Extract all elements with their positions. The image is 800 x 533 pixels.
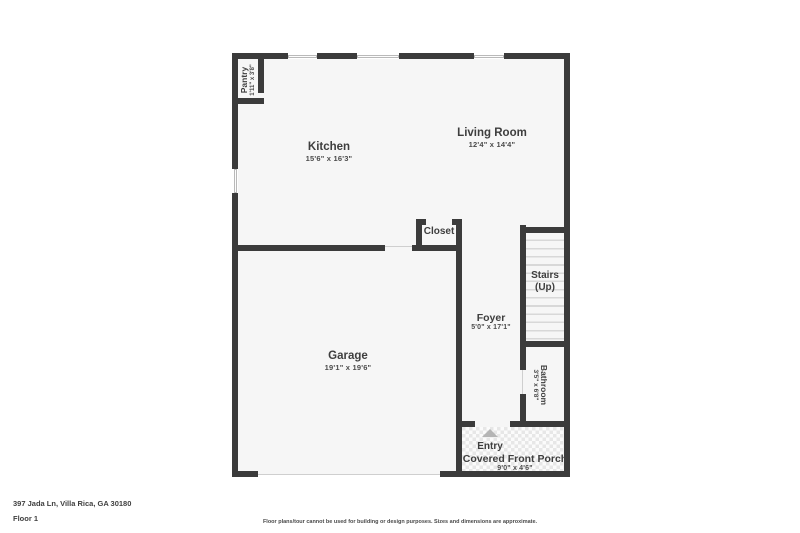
room-name: Stairs [531,270,559,282]
room-label-bathroom: Bathroom 3'5" x 6'8" [531,365,549,405]
room-dims: 9'0" x 4'6" [463,465,567,472]
room-name: Covered Front Porch [463,453,567,465]
garage-foyer-wall [456,219,462,471]
wall-left [232,53,238,169]
room-dims: 5'0" x 17'1" [471,324,511,331]
room-label-covered-front-porch: Covered Front Porch 9'0" x 4'6" [463,453,567,472]
room-dims: 1'11" x 3'8" [249,64,256,96]
window [288,55,317,58]
bathroom-door-line [522,370,523,394]
room-label-closet: Closet [424,226,455,238]
garage-door-line [258,474,440,475]
room-dims: 19'1" x 19'6" [325,363,372,372]
pantry-wall-bottom [238,98,264,104]
bathroom-wall-top [520,341,564,347]
wall-top [317,53,357,59]
room-name: Garage [325,350,372,363]
bathroom-wall-left [520,347,526,370]
wall-top [504,53,570,59]
room-dims: 3'5" x 6'8" [531,365,539,405]
entry-wall [462,421,475,427]
entry-wall [510,421,564,427]
stairs-direction: (Up) [531,282,559,294]
room-name: Pantry [240,64,250,96]
room-label-pantry: Pantry 1'11" x 3'8" [240,64,257,96]
room-label-kitchen: Kitchen 15'6" x 16'3" [306,141,353,163]
room-name: Closet [424,226,455,238]
wall-right [564,53,570,477]
window [357,55,399,58]
room-name: Entry [477,441,503,453]
wall-left [232,193,238,477]
room-name: Bathroom [539,365,549,405]
closet-wall-left [416,219,422,251]
room-label-foyer: Foyer 5'0" x 17'1" [471,312,511,331]
stairs-wall-top [526,227,564,233]
window [474,55,504,58]
room-dims: 15'6" x 16'3" [306,154,353,163]
pantry-wall-right [258,59,264,93]
room-label-living-room: Living Room 12'4" x 14'4" [457,127,527,149]
room-name: Foyer [471,312,511,324]
room-name: Living Room [457,127,527,140]
kitchen-garage-door-line [385,246,412,247]
plan-interior [235,56,567,474]
window [234,169,237,193]
floorplan-page: Living Room 12'4" x 14'4" Kitchen 15'6" … [0,0,800,533]
wall-top [399,53,474,59]
room-label-garage: Garage 19'1" x 19'6" [325,350,372,372]
room-label-entry: Entry [477,441,503,453]
kitchen-garage-wall [238,245,385,251]
room-name: Kitchen [306,141,353,154]
entry-direction-arrow-icon [482,429,498,437]
disclaimer-text: Floor plans/tour cannot be used for buil… [0,519,800,525]
stairs-wall-left [520,225,526,347]
room-label-stairs: Stairs (Up) [531,270,559,293]
wall-bottom [232,471,258,477]
room-dims: 12'4" x 14'4" [457,140,527,149]
floor-plan: Living Room 12'4" x 14'4" Kitchen 15'6" … [232,53,570,477]
property-address: 397 Jada Ln, Villa Rica, GA 30180 [13,499,131,508]
